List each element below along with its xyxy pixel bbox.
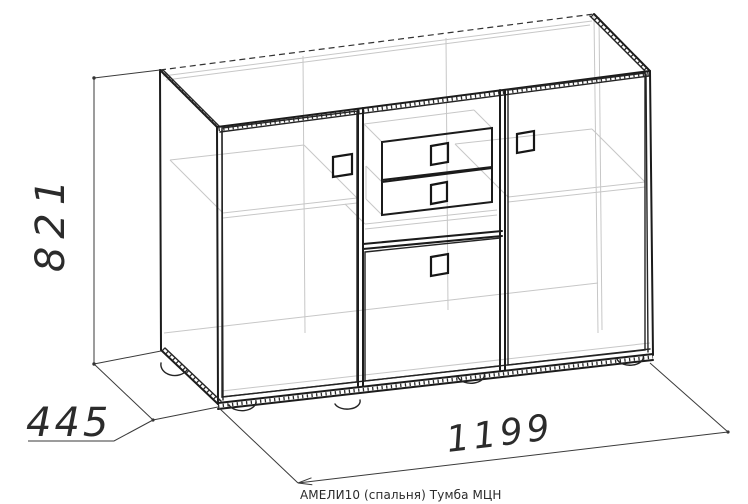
drawer-top-handle [431,143,448,165]
top-panel [160,14,650,132]
hidden-lines [163,16,650,391]
extension-line-top [94,70,160,78]
center-door-handle [431,254,448,276]
extension-line-bottom [94,351,161,364]
left-front-edge [217,127,218,404]
technical-drawing-page: 821 445 1199 АМЕЛИ10 (спальня) Тумба МЦН [0,0,748,504]
drawer-top [382,128,492,180]
height-dimension-value: 821 [28,172,74,272]
top-back-edge-dashed [160,14,594,70]
right-door-handle [517,131,534,153]
drawing-caption: АМЕЛИ10 (спальня) Тумба МЦН [300,488,501,502]
dimension-width: 1199 [298,407,728,485]
left-door [222,111,357,397]
dimension-depth: 445 [26,400,153,446]
left-door-handle [333,154,352,177]
carcass [160,70,653,409]
left-back-edge [160,70,161,350]
foot-center-left [335,400,360,409]
right-door [508,73,645,365]
drawer-bottom-handle [431,182,447,204]
width-dimension-value: 1199 [444,407,556,461]
right-front-edge [650,71,653,355]
depth-dimension-value: 445 [26,400,111,446]
center-bottom-door [365,238,500,381]
drawer-bottom [382,168,492,215]
dimension-height: 821 [28,70,161,366]
cabinet-technical-drawing: 821 445 1199 АМЕЛИ10 (спальня) Тумба МЦН [0,0,748,504]
